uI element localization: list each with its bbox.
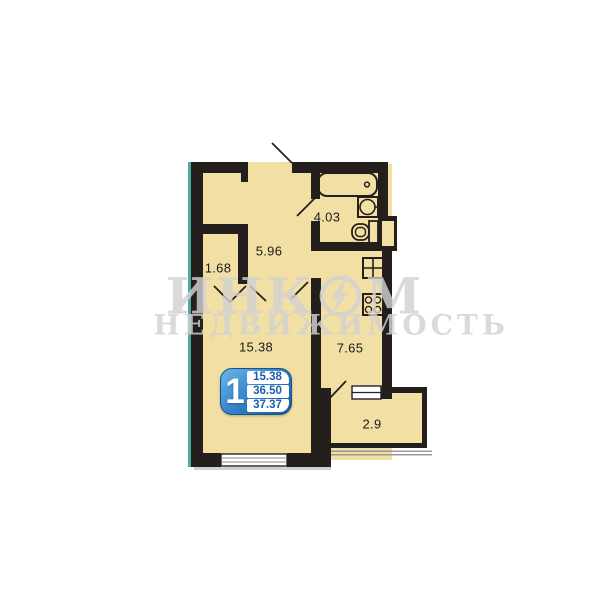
balcony-window-sill [352,386,381,399]
entry-jamb [241,173,248,182]
wall-bottom-left [191,453,221,467]
room-count: 1 [224,371,247,412]
wall-bottom-right [287,453,331,467]
bottom-wall-shadow [194,467,331,470]
ventilation-niche [382,221,394,246]
living-area-value: 15.38 [247,371,289,384]
floor-area-value: 36.50 [247,385,289,398]
area-values: 15.38 36.50 37.37 [247,371,289,412]
wall-kitchen-corner [311,388,331,453]
entry-door-swing [272,143,292,163]
hallway-area-label: 5.96 [256,244,283,259]
exterior-teal-edge [188,162,191,467]
floorplan-page: 4.03 5.96 1.68 15.38 7.65 2.9 1 15.38 36… [0,0,600,600]
balcony-area-label: 2.9 [363,417,382,432]
wall-balcony-top [391,387,427,393]
apartment-info-badge: 1 15.38 36.50 37.37 [220,368,292,415]
window [221,454,287,466]
living-room-area-label: 15.38 [239,340,273,355]
kitchen-area-label: 7.65 [337,341,364,356]
entry-doorway-floor [248,162,292,173]
wall-top-right [292,162,387,173]
wall-left [191,162,203,467]
closet-area-label: 1.68 [205,261,232,276]
wall-closet-right [238,224,248,284]
wall-balcony-right [422,387,427,448]
wall-sill-right [381,386,392,399]
wall-top-left [193,162,248,173]
floor-plan-drawing [0,0,600,600]
total-area-value: 37.37 [247,399,289,412]
bathroom-area-label: 4.03 [314,210,341,225]
wall-balcony-bottom [331,443,427,448]
